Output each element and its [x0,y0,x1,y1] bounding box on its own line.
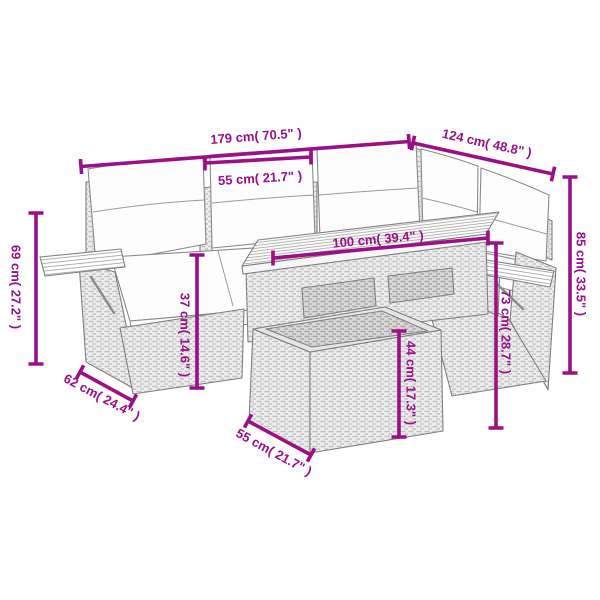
dimension-label: 124 cm( 48.8" ) [441,126,534,160]
dimension-label: 69 cm( 27.2" ) [8,245,23,329]
dimension-left-side-height: 69 cm( 27.2" ) [8,213,43,364]
dimension-label: 37 cm( 14.6" ) [177,293,192,377]
dimension-label: 179 cm( 70.5" ) [210,125,302,147]
dimension-back-height: 85 cm( 33.5" ) [563,177,589,373]
dimension-label: 85 cm( 33.5" ) [573,232,588,316]
dimension-label: 44 cm( 17.3" ) [403,341,418,425]
dimension-label: 73 cm( 28.7" ) [498,290,513,374]
furniture-dimension-diagram: 179 cm( 70.5" ) 55 cm( 21.7" ) 124 cm( 4… [0,0,600,600]
diagram-canvas: 179 cm( 70.5" ) 55 cm( 21.7" ) 124 cm( 4… [0,0,600,600]
